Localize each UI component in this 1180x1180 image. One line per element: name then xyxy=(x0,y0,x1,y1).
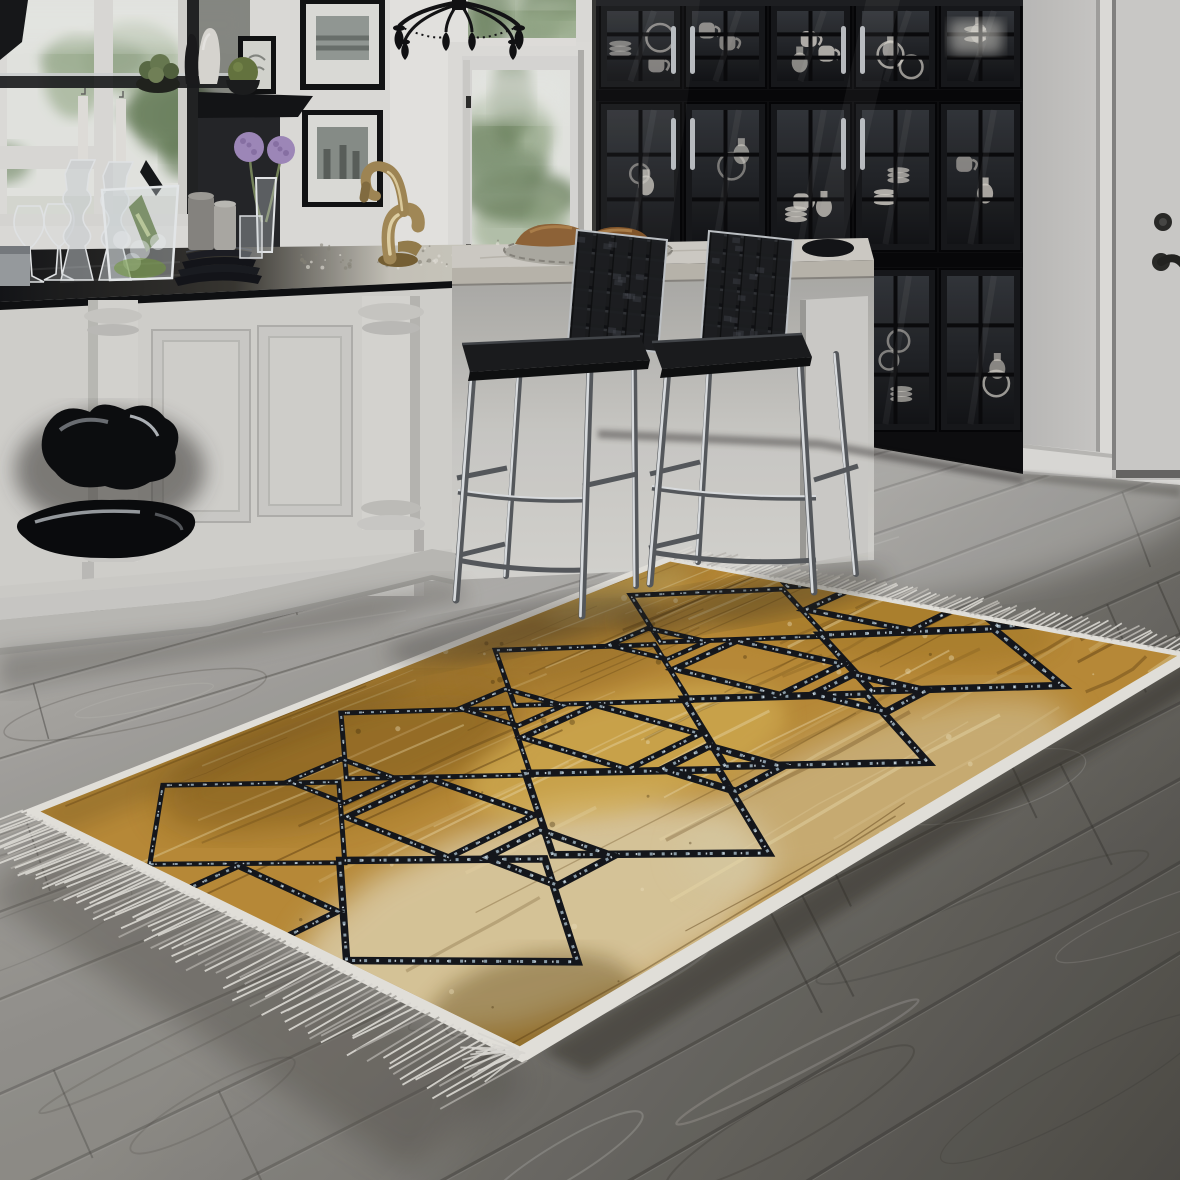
rug-product-photo xyxy=(0,0,1180,1180)
scene-photo xyxy=(0,0,1180,1180)
vignette xyxy=(0,0,1180,1180)
